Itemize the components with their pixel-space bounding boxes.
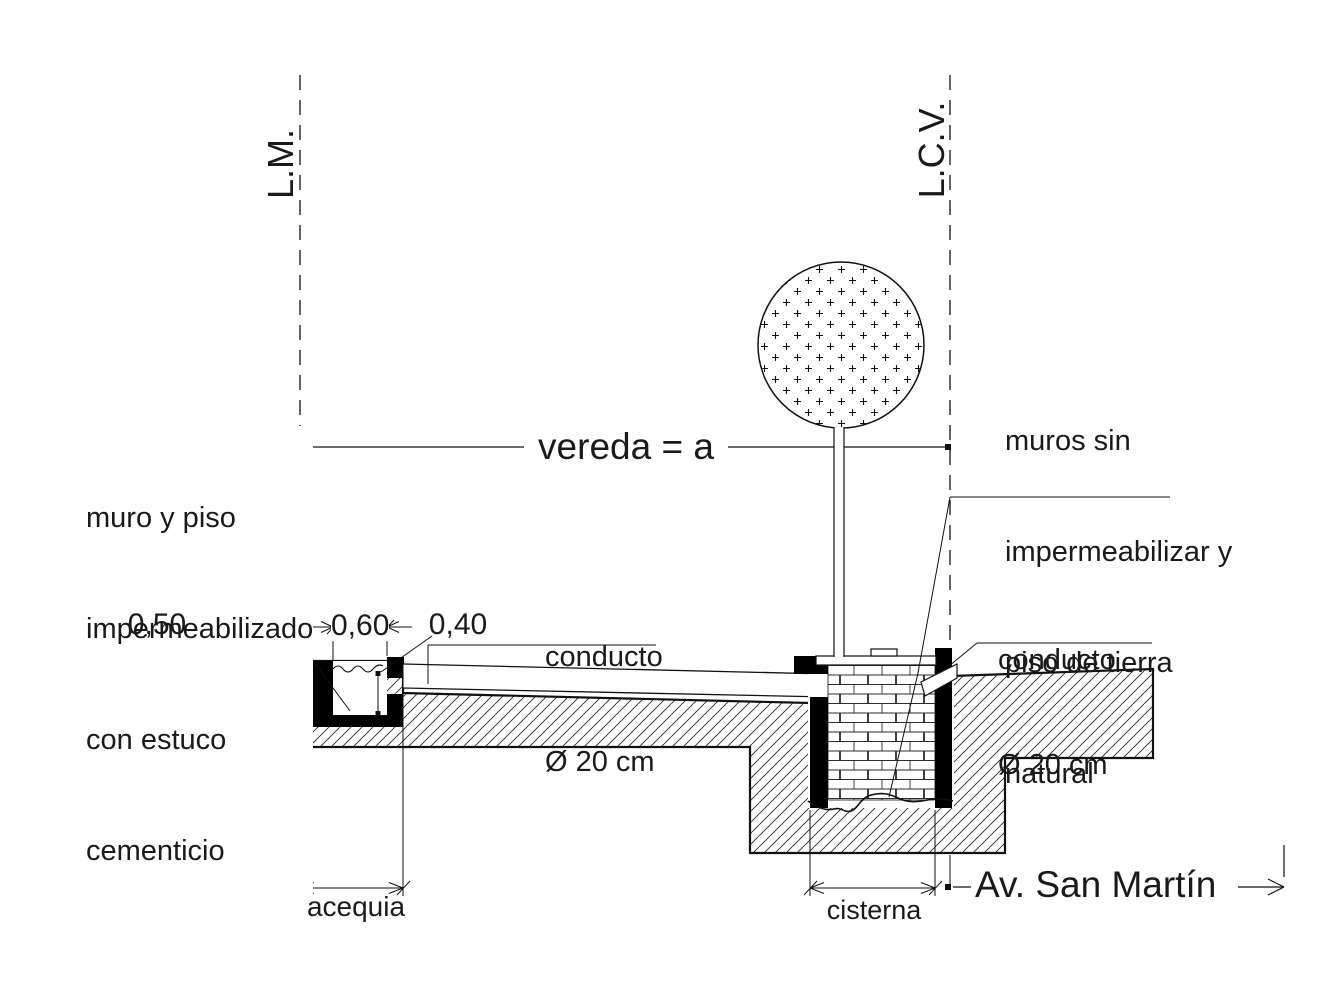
left-note-line: muro y piso xyxy=(86,500,313,537)
cisterna-label: cisterna xyxy=(814,897,934,924)
left-note-line: con estuco xyxy=(86,722,313,759)
brick-fill xyxy=(828,664,935,800)
conducto-right-label: conducto Ø 20 cm xyxy=(998,573,1116,818)
cisterna-pit xyxy=(794,648,957,811)
dim-060-label: 0,60 xyxy=(331,611,389,641)
dim-040-label: 0,40 xyxy=(418,610,498,640)
acequia-label: acequia xyxy=(296,893,416,921)
right-note-line: muros sin xyxy=(1005,423,1232,460)
right-note-line: impermeabilizar y xyxy=(1005,534,1232,571)
tree-symbol xyxy=(758,262,924,657)
acequia-interior xyxy=(333,661,387,715)
left-note: muro y piso impermeabilizado con estuco … xyxy=(86,426,313,907)
section-drawing: L.M. L.C.V. vereda = a muro y piso imper… xyxy=(0,0,1322,991)
vereda-dimension-label: vereda = a xyxy=(526,428,726,465)
dim-050-label: 0,50 xyxy=(117,610,197,640)
lm-line-label: L.M. xyxy=(263,124,299,204)
tree-canopy xyxy=(758,262,924,428)
tree-trunk xyxy=(834,427,844,657)
cisterna-slab xyxy=(816,656,936,665)
lcv-line-label: L.C.V. xyxy=(914,100,950,200)
left-note-line: cementicio xyxy=(86,833,313,870)
cisterna-cap xyxy=(871,649,897,656)
conducto-left-label: conducto Ø 20 cm xyxy=(545,570,663,815)
street-label: Av. San Martín xyxy=(975,866,1216,903)
